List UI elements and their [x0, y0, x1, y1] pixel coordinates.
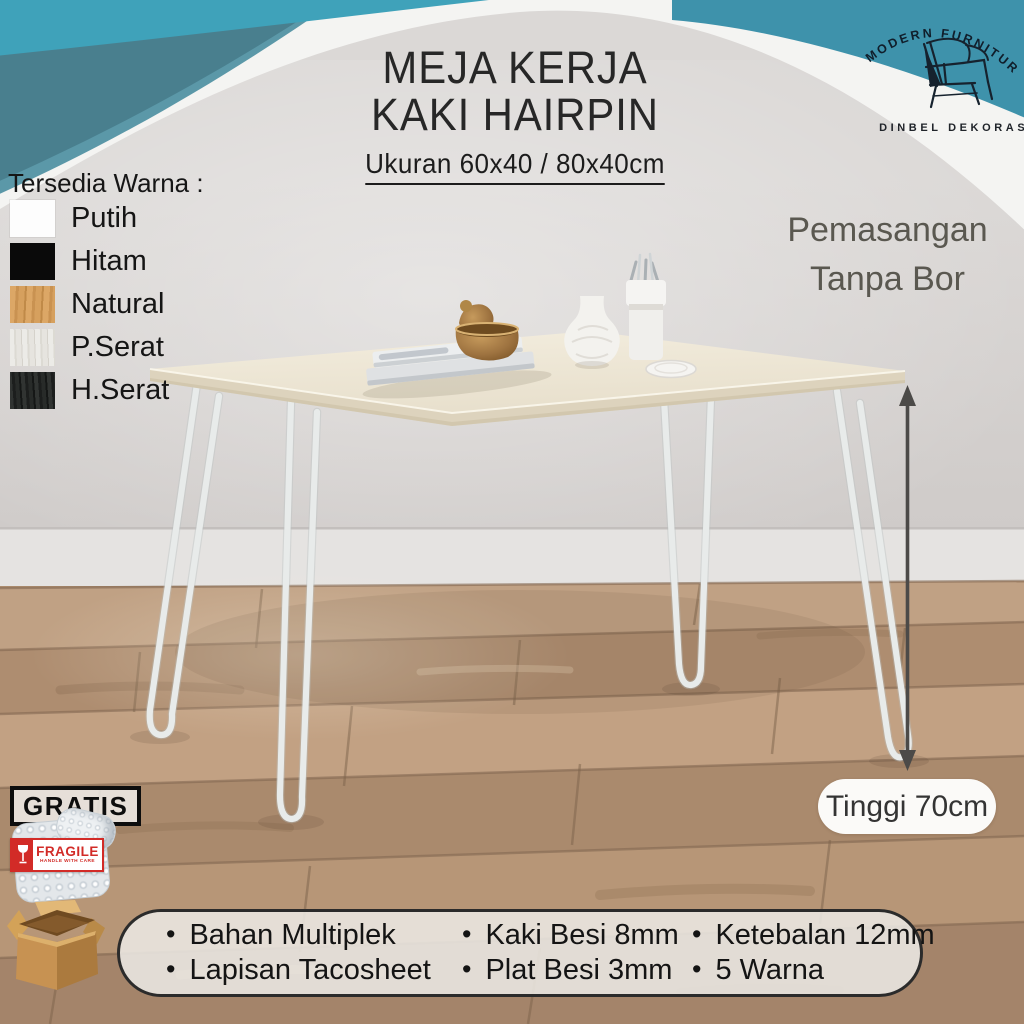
install-note-line1: Pemasangan — [770, 206, 1005, 255]
title-line-2: KAKI HAIRPIN — [315, 91, 715, 138]
swatch-label: P.Serat — [71, 331, 164, 364]
swatch-label: Natural — [71, 288, 165, 321]
fragile-subtitle: HANDLE WITH CARE — [40, 860, 95, 865]
product-poster: MODERN FURNITURE DINBEL DEKORASI — [0, 0, 1024, 1024]
swatch-label: H.Serat — [71, 374, 169, 407]
title-block: MEJA KERJA KAKI HAIRPIN Ukuran 60x40 / 8… — [315, 44, 715, 185]
size-note: Ukuran 60x40 / 80x40cm — [365, 148, 665, 185]
baseboard — [0, 527, 1024, 588]
round-dish — [646, 361, 696, 378]
spec-pill: Bahan Multiplek Kaki Besi 8mm Ketebalan … — [117, 909, 923, 997]
color-options-list: Putih Hitam Natural P.Serat H.Serat — [10, 200, 169, 409]
cardboard-box-icon — [5, 896, 107, 994]
brand-name-text: DINBEL DEKORASI — [879, 122, 1024, 134]
color-option-putih: Putih — [10, 200, 169, 237]
install-note: Pemasangan Tanpa Bor — [770, 206, 1005, 304]
fragile-title: FRAGILE — [36, 845, 99, 859]
spec-item: Bahan Multiplek — [166, 919, 462, 952]
table-soft-shadow — [175, 590, 865, 714]
color-options-heading: Tersedia Warna : — [8, 168, 204, 199]
title-line-1: MEJA KERJA — [315, 44, 715, 91]
spec-item: 5 Warna — [692, 954, 935, 987]
swatch-label: Putih — [71, 202, 137, 235]
spec-item: Kaki Besi 8mm — [462, 919, 692, 952]
swatch-natural — [10, 286, 55, 323]
spec-item: Plat Besi 3mm — [462, 954, 692, 987]
swatch-hserat — [10, 372, 55, 409]
height-badge-label: Tinggi 70cm — [826, 790, 988, 824]
fragile-sticker: FRAGILE HANDLE WITH CARE — [10, 838, 104, 872]
swatch-putih — [10, 200, 55, 237]
spec-item: Ketebalan 12mm — [692, 919, 935, 952]
color-option-pserat: P.Serat — [10, 329, 169, 366]
baseboard-top-line — [0, 527, 1024, 530]
swatch-label: Hitam — [71, 245, 147, 278]
swatch-pserat — [10, 329, 55, 366]
spec-item: Lapisan Tacosheet — [166, 954, 462, 987]
swatch-hitam — [10, 243, 55, 280]
color-option-natural: Natural — [10, 286, 169, 323]
height-badge: Tinggi 70cm — [818, 779, 996, 834]
wine-glass-icon — [12, 840, 33, 870]
install-note-line2: Tanpa Bor — [770, 255, 1005, 304]
color-option-hitam: Hitam — [10, 243, 169, 280]
color-option-hserat: H.Serat — [10, 372, 169, 409]
